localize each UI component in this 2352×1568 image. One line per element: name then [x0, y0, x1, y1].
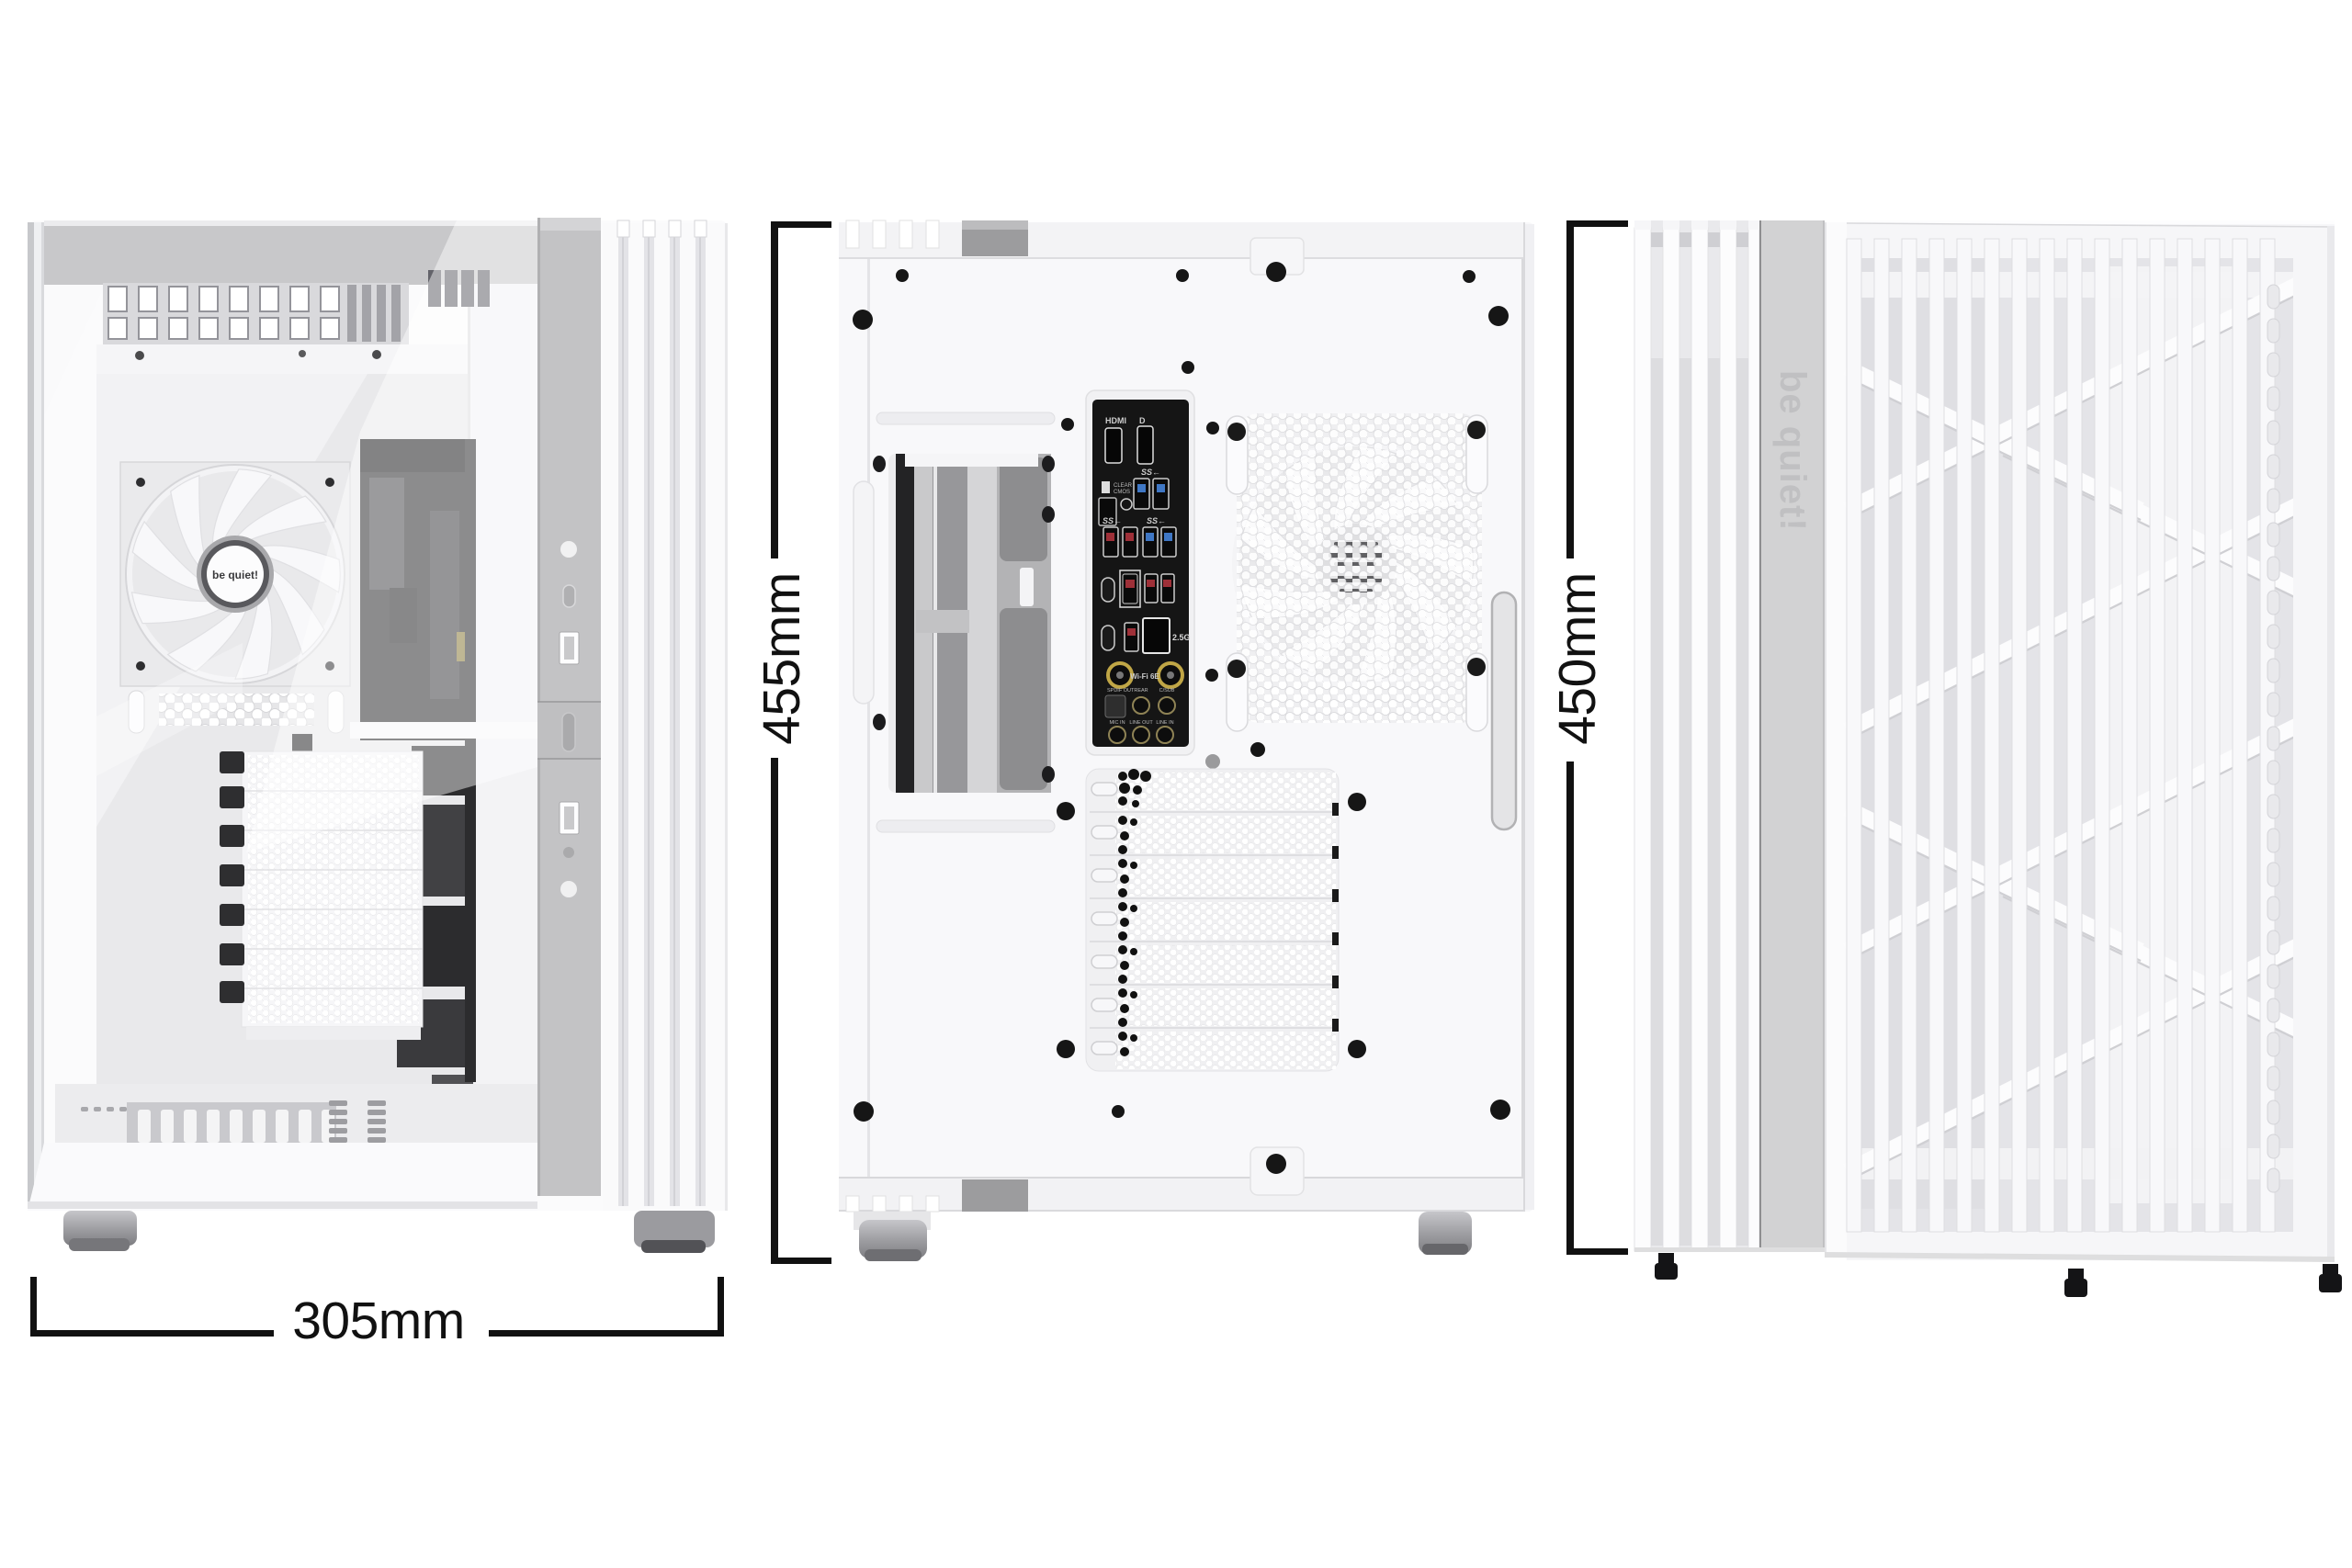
- svg-text:305mm: 305mm: [292, 1292, 465, 1350]
- svg-text:CMOS: CMOS: [1114, 490, 1130, 495]
- svg-text:LINE IN: LINE IN: [1156, 720, 1173, 726]
- svg-text:455mm: 455mm: [752, 572, 811, 745]
- svg-text:MIC IN: MIC IN: [1109, 720, 1125, 726]
- svg-text:REAR: REAR: [1134, 688, 1148, 694]
- svg-text:C/SUB: C/SUB: [1159, 688, 1175, 694]
- svg-text:be quiet!: be quiet!: [212, 569, 258, 581]
- svg-text:2.5G: 2.5G: [1172, 633, 1191, 642]
- svg-text:LINE OUT: LINE OUT: [1129, 720, 1153, 726]
- svg-text:CLEAR: CLEAR: [1114, 483, 1133, 489]
- svg-text:be quiet!: be quiet!: [1772, 370, 1813, 532]
- svg-text:SS←: SS←: [1102, 516, 1122, 525]
- svg-text:SS←: SS←: [1147, 516, 1166, 525]
- svg-text:D: D: [1139, 416, 1146, 425]
- svg-text:SPDIF OUT: SPDIF OUT: [1107, 688, 1135, 694]
- svg-text:450mm: 450mm: [1548, 572, 1607, 745]
- svg-text:Wi-Fi 6E: Wi-Fi 6E: [1130, 672, 1159, 681]
- svg-text:SS←: SS←: [1141, 468, 1160, 477]
- svg-text:HDMI: HDMI: [1105, 416, 1126, 425]
